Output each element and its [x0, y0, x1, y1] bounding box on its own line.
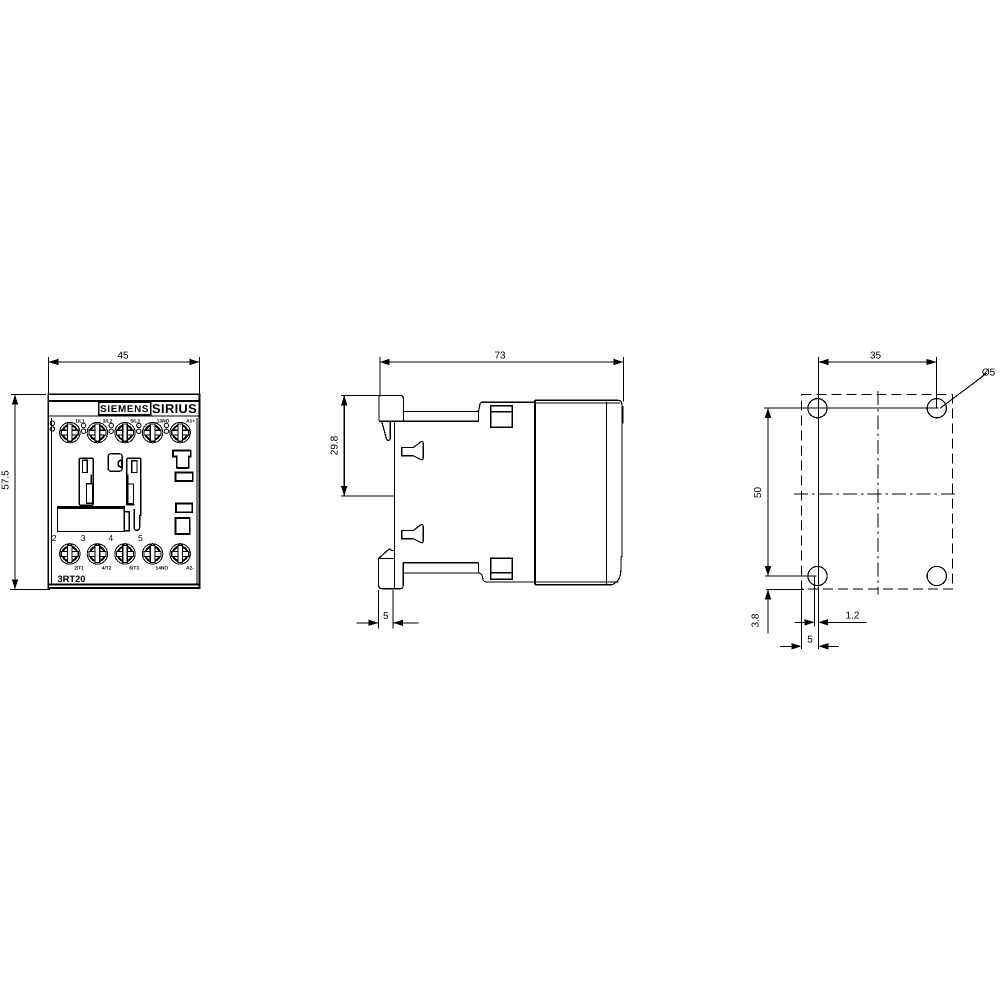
svg-text:1.2: 1.2: [846, 610, 860, 621]
svg-text:SIEMENS: SIEMENS: [100, 404, 149, 415]
svg-text:5: 5: [138, 533, 143, 543]
svg-text:A1+: A1+: [186, 418, 195, 424]
svg-text:35: 35: [870, 351, 882, 362]
svg-text:Ø5: Ø5: [982, 368, 996, 379]
svg-text:29.8: 29.8: [330, 435, 341, 455]
svg-text:4: 4: [108, 533, 113, 543]
svg-text:45: 45: [117, 351, 129, 362]
svg-text:73: 73: [494, 351, 506, 362]
svg-text:3: 3: [81, 533, 86, 543]
svg-text:14NO: 14NO: [156, 566, 169, 572]
svg-text:A2-: A2-: [186, 566, 194, 572]
svg-text:3RT20: 3RT20: [58, 574, 86, 584]
svg-text:6/T3: 6/T3: [129, 566, 139, 572]
svg-text:5: 5: [807, 635, 813, 646]
svg-text:4/T2: 4/T2: [102, 566, 112, 572]
svg-text:2/T1: 2/T1: [74, 566, 84, 572]
svg-text:3.8: 3.8: [751, 613, 762, 627]
svg-text:2: 2: [52, 533, 57, 543]
svg-text:5: 5: [383, 611, 389, 622]
svg-text:SIRIUS: SIRIUS: [152, 401, 197, 416]
svg-text:50: 50: [753, 487, 764, 499]
svg-text:57.5: 57.5: [1, 470, 12, 490]
